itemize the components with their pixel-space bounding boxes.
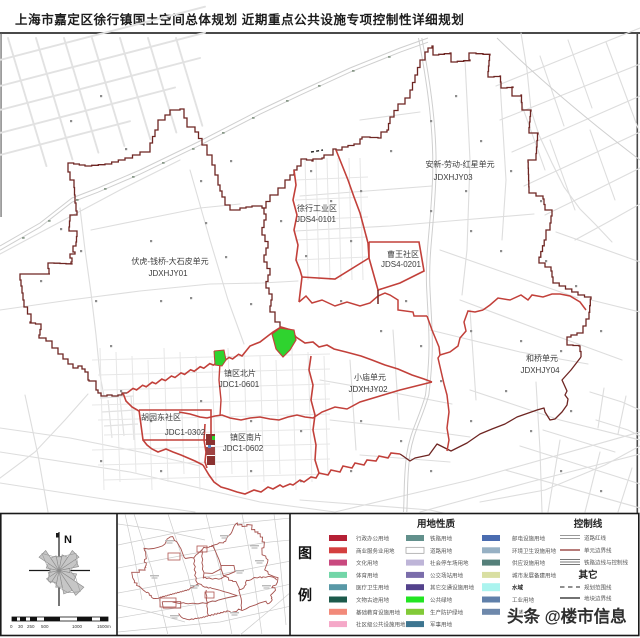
svg-text:JDC1-0602: JDC1-0602 — [223, 444, 264, 453]
svg-text:社会停车场用地: 社会停车场用地 — [430, 559, 469, 567]
svg-text:医疗卫生用地: 医疗卫生用地 — [356, 584, 390, 592]
svg-text:道路红线: 道路红线 — [584, 534, 607, 542]
svg-text:500: 500 — [41, 624, 49, 629]
svg-text:环境卫生设施用地: 环境卫生设施用地 — [512, 547, 557, 555]
svg-text:胡园东社区: 胡园东社区 — [141, 412, 181, 422]
svg-text:公交场站用地: 公交场站用地 — [430, 571, 464, 579]
svg-text:曹王社区: 曹王社区 — [387, 249, 419, 259]
svg-text:1000: 1000 — [72, 624, 83, 629]
svg-text:徐行工业区: 徐行工业区 — [297, 203, 337, 213]
svg-text:基础教育设施用地: 基础教育设施用地 — [356, 608, 401, 616]
svg-text:JDXHJY03: JDXHJY03 — [433, 173, 473, 182]
svg-text:N: N — [64, 534, 72, 546]
svg-text:例: 例 — [298, 587, 312, 603]
svg-text:公共绿地: 公共绿地 — [430, 596, 453, 604]
svg-text:军事用地: 军事用地 — [430, 621, 453, 629]
svg-text:头条 @楼市信息: 头条 @楼市信息 — [507, 606, 627, 626]
svg-text:JDXHJY01: JDXHJY01 — [148, 269, 188, 278]
svg-text:其它交通设施用地: 其它交通设施用地 — [430, 584, 475, 592]
svg-text:生产防护绿地: 生产防护绿地 — [430, 608, 464, 616]
svg-text:JDC1-0601: JDC1-0601 — [219, 380, 260, 389]
svg-text:行政办公用地: 行政办公用地 — [356, 535, 390, 543]
svg-text:图: 图 — [298, 545, 312, 561]
svg-text:JDS4-0201: JDS4-0201 — [381, 260, 422, 269]
svg-text:JDC1-0302: JDC1-0302 — [165, 428, 206, 437]
svg-text:单元边界线: 单元边界线 — [584, 547, 612, 555]
svg-text:社区级公共设施用地: 社区级公共设施用地 — [356, 621, 406, 629]
svg-text:文化用地: 文化用地 — [356, 559, 379, 567]
svg-text:供应设施用地: 供应设施用地 — [512, 559, 546, 567]
svg-text:和桥单元: 和桥单元 — [526, 353, 558, 363]
svg-text:镇区南片: 镇区南片 — [230, 432, 262, 442]
svg-text:规划范围线: 规划范围线 — [584, 584, 612, 592]
svg-text:用地性质: 用地性质 — [416, 518, 456, 530]
svg-text:伏虎-钱桥-大石皮单元: 伏虎-钱桥-大石皮单元 — [131, 256, 208, 266]
svg-text:小庙单元: 小庙单元 — [354, 372, 386, 382]
svg-text:体育用地: 体育用地 — [356, 571, 379, 579]
svg-text:道路用地: 道路用地 — [430, 547, 453, 555]
svg-text:地块边界线: 地块边界线 — [584, 595, 612, 603]
svg-text:250: 250 — [27, 624, 35, 629]
svg-text:JDXHJY04: JDXHJY04 — [520, 366, 560, 375]
svg-text:邮电设施用地: 邮电设施用地 — [512, 535, 546, 543]
svg-text:30: 30 — [18, 624, 24, 629]
svg-text:工业用地: 工业用地 — [512, 596, 535, 604]
svg-text:上海市嘉定区徐行镇国土空间总体规划 近期重点公共设施专项控: 上海市嘉定区徐行镇国土空间总体规划 近期重点公共设施专项控制性详细规划 — [15, 12, 464, 27]
svg-text:铁路用地: 铁路用地 — [430, 535, 453, 543]
svg-text:水域: 水域 — [512, 584, 524, 592]
svg-text:控制线: 控制线 — [574, 518, 603, 530]
svg-text:1500m: 1500m — [97, 624, 111, 629]
svg-text:镇区北片: 镇区北片 — [224, 368, 256, 378]
svg-text:城市发展备建用地: 城市发展备建用地 — [512, 571, 557, 579]
svg-text:商业服务业用地: 商业服务业用地 — [356, 547, 395, 555]
svg-text:安新-劳动-红星单元: 安新-劳动-红星单元 — [425, 159, 494, 169]
svg-text:铁路边线与控制线: 铁路边线与控制线 — [584, 559, 629, 567]
svg-text:JDXHJY02: JDXHJY02 — [348, 385, 388, 394]
svg-text:其它: 其它 — [578, 569, 597, 581]
svg-text:JDS4-0101: JDS4-0101 — [296, 215, 337, 224]
svg-text:文物古迹用地: 文物古迹用地 — [356, 596, 390, 604]
